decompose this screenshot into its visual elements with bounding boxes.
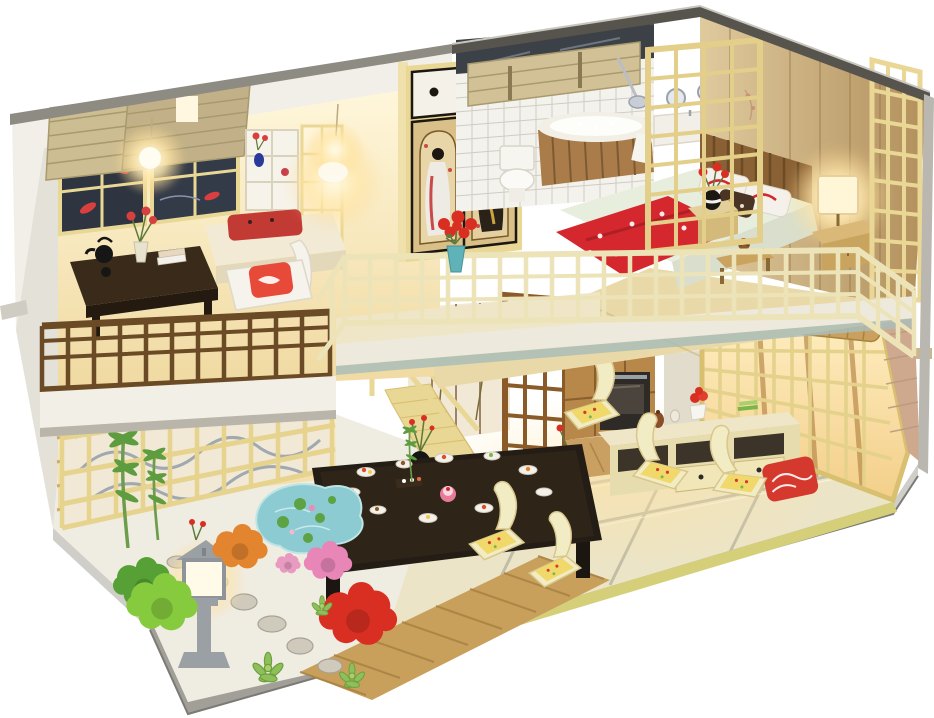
dollhouse-photo [0, 0, 934, 718]
dollhouse-scene [0, 0, 934, 718]
bedside-lamp [818, 176, 858, 214]
koi-pond [256, 484, 362, 553]
lotus-bloom [309, 505, 315, 511]
pink-cake [440, 486, 456, 502]
shade-gap [176, 96, 198, 122]
blue-vase [254, 153, 264, 167]
